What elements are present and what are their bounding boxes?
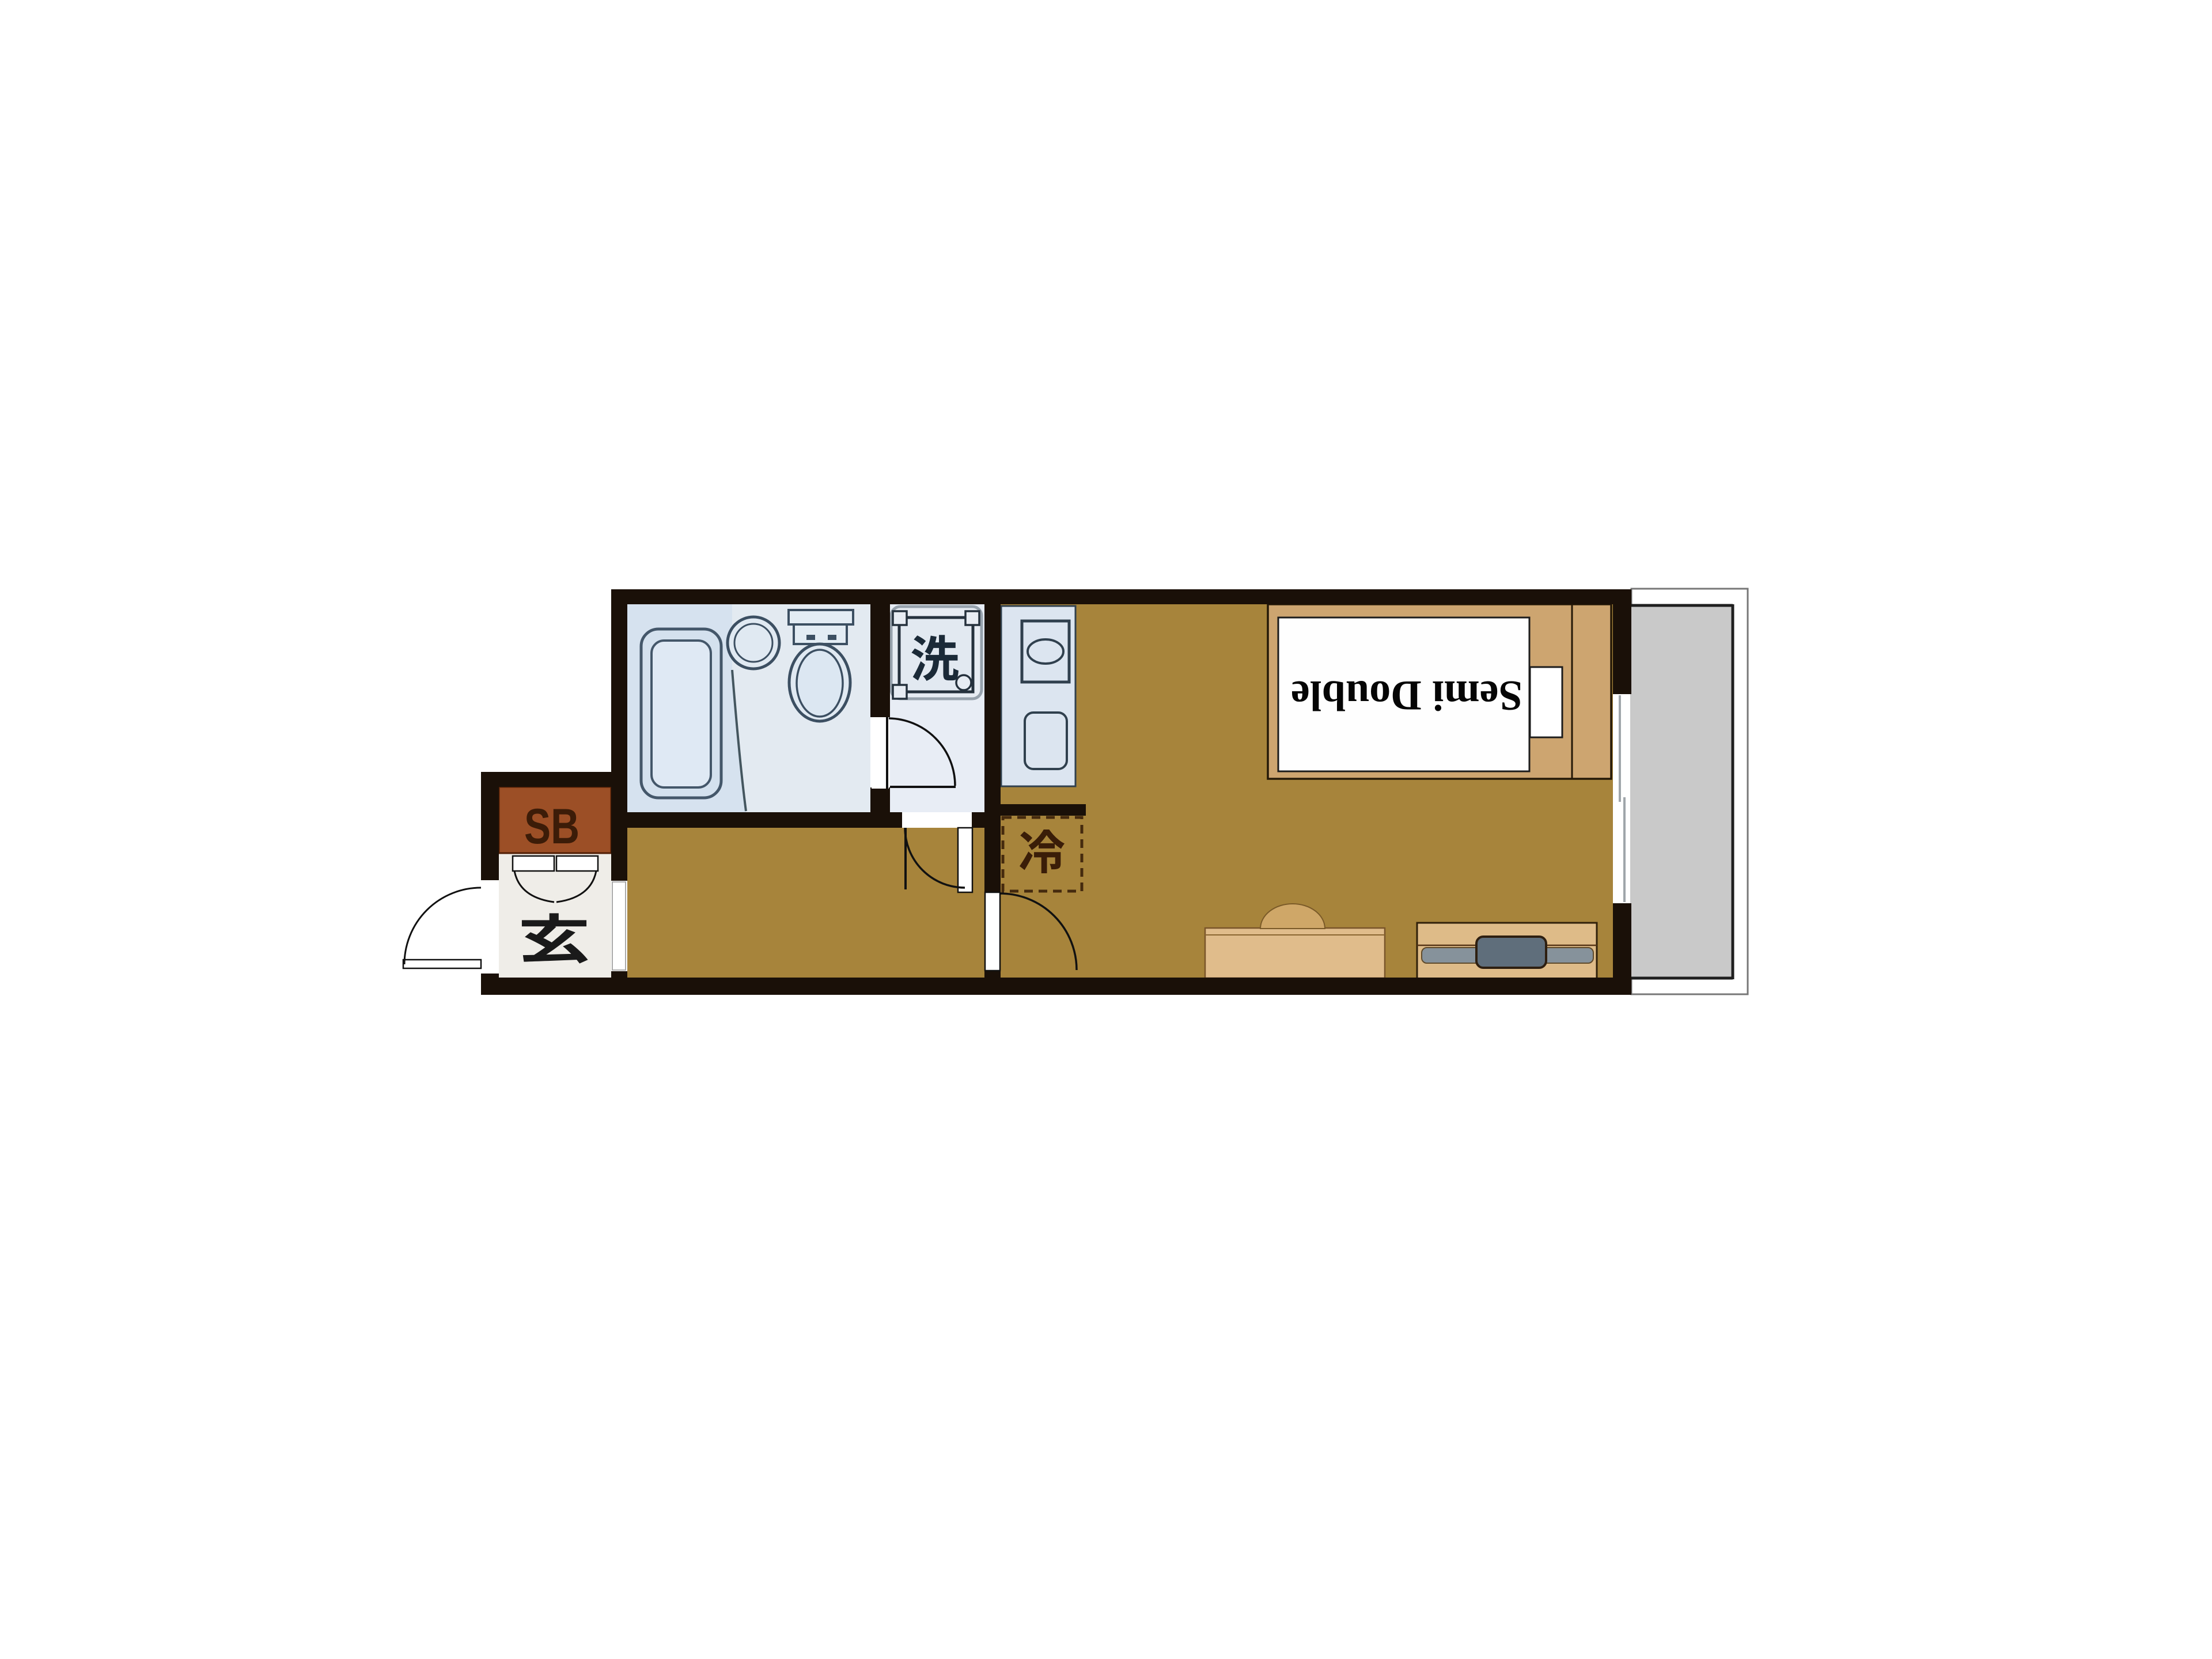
svg-text:Semi Double: Semi Double [1291,672,1522,719]
svg-text:SB: SB [524,799,579,854]
